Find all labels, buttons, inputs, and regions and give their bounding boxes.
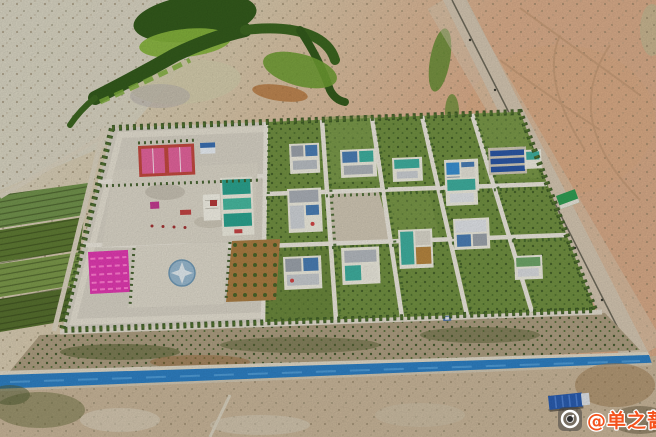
camera-icon: [558, 407, 582, 431]
watermark: @单之蔷: [558, 407, 656, 432]
camera-lens-highlight: [572, 415, 574, 417]
photo-grain: [0, 0, 656, 437]
aerial-photo: @单之蔷: [0, 0, 656, 437]
watermark-text: @单之蔷: [587, 409, 656, 432]
aerial-photo-canvas: @单之蔷: [0, 0, 656, 437]
